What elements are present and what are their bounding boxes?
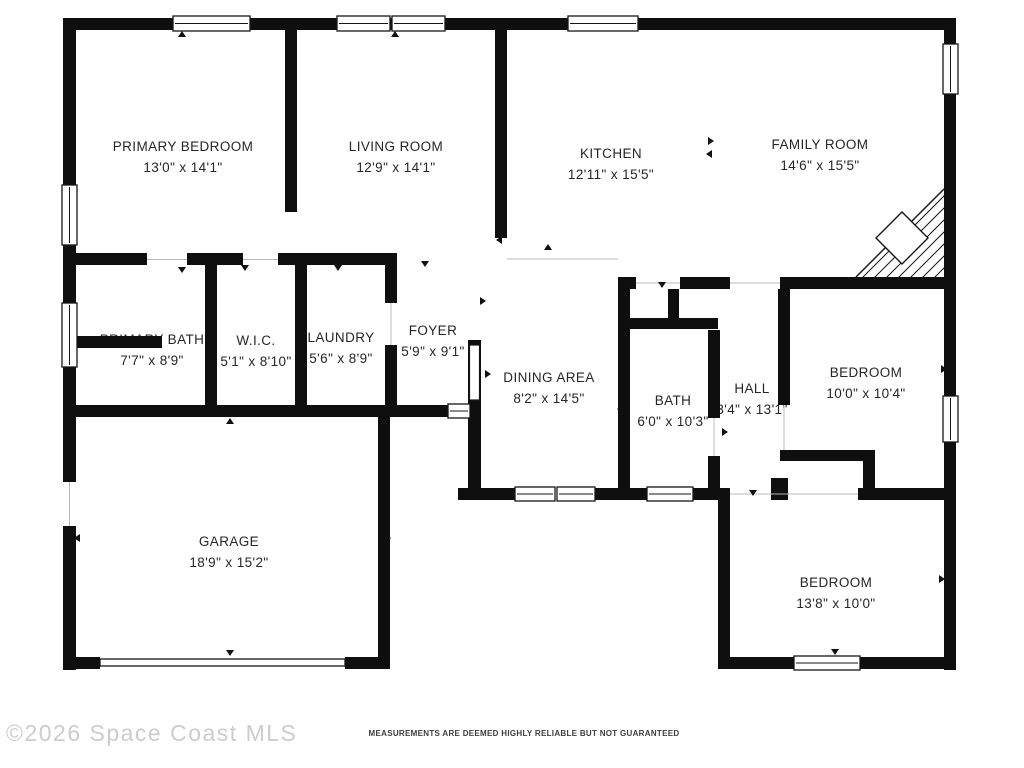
room-label-garage: GARAGE 18'9" x 15'2" bbox=[189, 531, 268, 573]
room-dims: 18'9" x 15'2" bbox=[189, 552, 268, 573]
room-label-laundry: LAUNDRY 5'6" x 8'9" bbox=[307, 327, 374, 369]
room-dims: 14'6" x 15'5" bbox=[772, 155, 869, 176]
room-label-living-room: LIVING ROOM 12'9" x 14'1" bbox=[349, 136, 443, 178]
room-dims: 8'2" x 14'5" bbox=[503, 388, 594, 409]
room-dims: 10'0" x 10'4" bbox=[826, 383, 905, 404]
room-name: PRIMARY BEDROOM bbox=[113, 136, 254, 157]
room-name: DINING AREA bbox=[503, 367, 594, 388]
room-dims: 12'11" x 15'5" bbox=[568, 164, 654, 185]
room-label-bedroom-bottom: BEDROOM 13'8" x 10'0" bbox=[796, 572, 875, 614]
room-name: HALL bbox=[716, 378, 787, 399]
room-name: BEDROOM bbox=[826, 362, 905, 383]
room-dims: 12'9" x 14'1" bbox=[349, 157, 443, 178]
room-dims: 6'0" x 10'3" bbox=[637, 411, 708, 432]
room-label-dining-area: DINING AREA 8'2" x 14'5" bbox=[503, 367, 594, 409]
room-name: KITCHEN bbox=[568, 143, 654, 164]
room-dims: 5'9" x 9'1" bbox=[401, 341, 464, 362]
floor-plan: PRIMARY BEDROOM 13'0" x 14'1" LIVING ROO… bbox=[0, 0, 1024, 768]
room-dims: 3'4" x 13'1" bbox=[716, 399, 787, 420]
room-name: GARAGE bbox=[189, 531, 268, 552]
room-label-foyer: FOYER 5'9" x 9'1" bbox=[401, 320, 464, 362]
room-dims: 13'8" x 10'0" bbox=[796, 593, 875, 614]
room-name: FOYER bbox=[401, 320, 464, 341]
room-label-primary-bedroom: PRIMARY BEDROOM 13'0" x 14'1" bbox=[113, 136, 254, 178]
room-label-primary-bath: PRIMARY BATH 7'7" x 8'9" bbox=[100, 329, 205, 371]
room-name: PRIMARY BATH bbox=[100, 329, 205, 350]
room-name: W.I.C. bbox=[220, 330, 291, 351]
room-label-kitchen: KITCHEN 12'11" x 15'5" bbox=[568, 143, 654, 185]
room-name: LIVING ROOM bbox=[349, 136, 443, 157]
room-label-bedroom-right: BEDROOM 10'0" x 10'4" bbox=[826, 362, 905, 404]
room-name: FAMILY ROOM bbox=[772, 134, 869, 155]
room-dims: 7'7" x 8'9" bbox=[100, 350, 205, 371]
room-name: BATH bbox=[637, 390, 708, 411]
room-label-hall: HALL 3'4" x 13'1" bbox=[716, 378, 787, 420]
room-dims: 13'0" x 14'1" bbox=[113, 157, 254, 178]
room-label-wic: W.I.C. 5'1" x 8'10" bbox=[220, 330, 291, 372]
room-dims: 5'1" x 8'10" bbox=[220, 351, 291, 372]
room-label-family-room: FAMILY ROOM 14'6" x 15'5" bbox=[772, 134, 869, 176]
room-name: LAUNDRY bbox=[307, 327, 374, 348]
room-label-bath: BATH 6'0" x 10'3" bbox=[637, 390, 708, 432]
room-labels: PRIMARY BEDROOM 13'0" x 14'1" LIVING ROO… bbox=[0, 0, 1024, 768]
room-dims: 5'6" x 8'9" bbox=[307, 348, 374, 369]
room-name: BEDROOM bbox=[796, 572, 875, 593]
